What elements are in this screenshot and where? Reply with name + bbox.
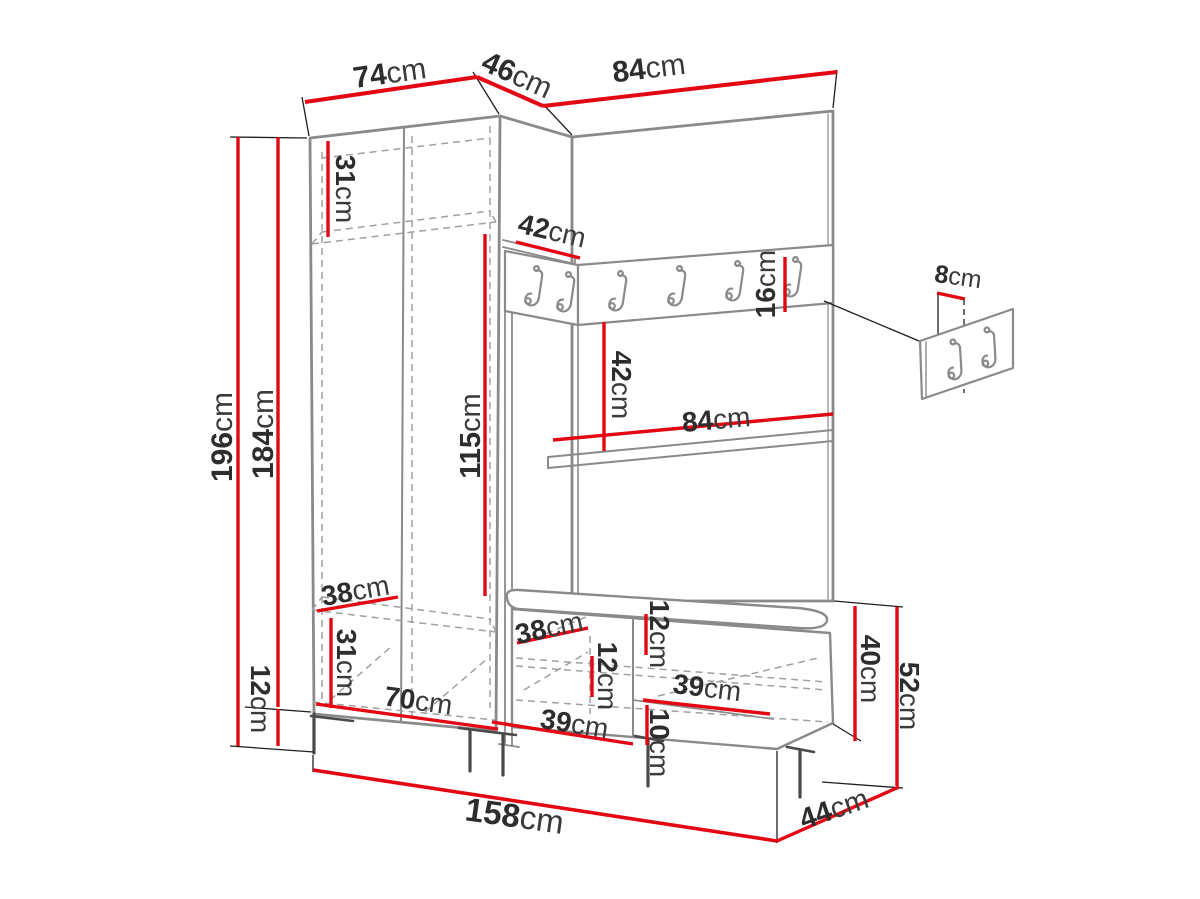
dim-label-hanging-space: 115cm (455, 393, 487, 478)
dim-label-top-compartment: 31cm (330, 155, 361, 223)
dim-label-rail-to-shelf: 42cm (606, 351, 637, 419)
dim-label-total-width: 158cm (463, 790, 566, 840)
dim-label-bench-compartment: 12cm (592, 642, 623, 710)
dim-label-bench-bottom: 10cm (644, 709, 675, 777)
dim-label-total-height: 196cm (206, 392, 239, 482)
hook-panel (920, 309, 1013, 399)
dim-label-wardrobe-width: 74cm (351, 52, 428, 95)
dim-label-hook-offset: 8cm (933, 260, 984, 294)
dim-label-rail-height: 16cm (750, 250, 781, 318)
hook-panel-detail (920, 309, 1013, 399)
corner-top-edge (500, 116, 572, 137)
dim-line-hook-offset (937, 293, 965, 299)
detail-leader-line (824, 301, 919, 341)
dim-label-bench-total-height: 52cm (894, 662, 925, 730)
hallway-unit-outline (310, 111, 833, 749)
dim-label-cushion-thickness: 12cm (644, 600, 675, 668)
dim-label-leg-height: 12cm (245, 665, 276, 733)
dim-label-bench-body-height: 40cm (855, 635, 886, 703)
furniture-dimension-diagram: 74cm 46cm 84cm 196cm 184cm 12cm 31cm 115… (0, 0, 1200, 899)
dim-label-bench-depth: 44cm (795, 783, 872, 836)
dim-label-cabinet-height: 184cm (247, 389, 280, 479)
dim-label-panel-width: 84cm (610, 48, 687, 90)
hook-rail-corner (505, 251, 578, 325)
dim-label-shelf-width: 84cm (681, 401, 752, 438)
dim-label-bottom-compartment: 31cm (331, 629, 362, 697)
dim-line-panel-width (543, 72, 837, 106)
diagram-page: 74cm 46cm 84cm 196cm 184cm 12cm 31cm 115… (0, 0, 1200, 899)
